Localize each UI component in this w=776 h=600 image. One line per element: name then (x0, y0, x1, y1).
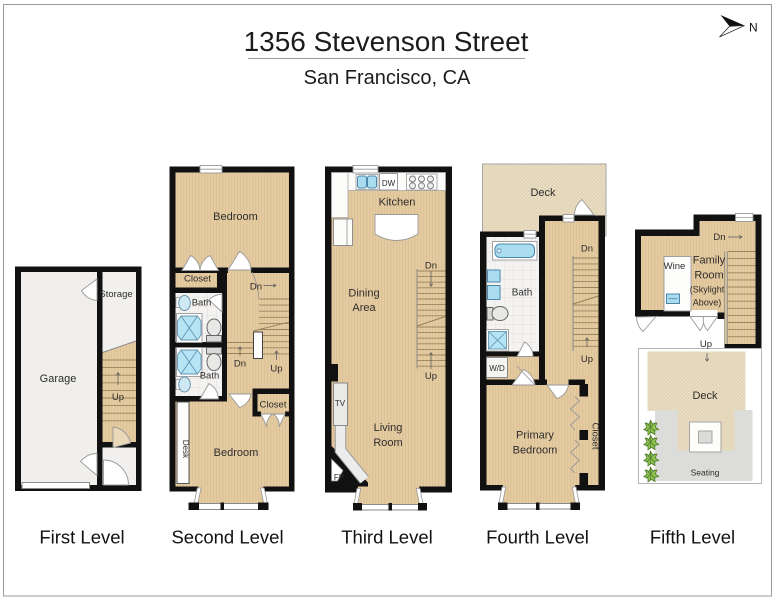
svg-text:Dn: Dn (250, 282, 262, 293)
svg-text:Bedroom: Bedroom (213, 211, 258, 223)
svg-text:Living: Living (374, 422, 403, 434)
svg-text:W/D: W/D (489, 364, 505, 373)
svg-text:Garage: Garage (40, 373, 77, 385)
svg-text:Wine: Wine (664, 261, 686, 272)
svg-text:Bedroom: Bedroom (513, 445, 558, 457)
svg-text:Desk: Desk (181, 440, 190, 459)
svg-text:Dn: Dn (425, 261, 437, 272)
svg-text:Room: Room (373, 437, 402, 449)
svg-text:Second Level: Second Level (171, 527, 283, 548)
svg-text:Storage: Storage (99, 289, 132, 300)
svg-text:Deck: Deck (692, 390, 718, 402)
svg-text:Dn: Dn (713, 232, 725, 243)
svg-text:Up: Up (425, 371, 437, 382)
svg-text:Closet: Closet (260, 400, 287, 411)
svg-text:FP: FP (334, 473, 344, 482)
svg-text:Above): Above) (693, 298, 722, 308)
svg-text:Bath: Bath (200, 371, 220, 382)
svg-text:Third Level: Third Level (341, 527, 433, 548)
svg-text:First Level: First Level (39, 527, 124, 548)
svg-text:Fifth Level: Fifth Level (650, 527, 735, 548)
svg-text:TV: TV (335, 399, 346, 408)
svg-text:Dining: Dining (348, 288, 379, 300)
svg-text:1356 Stevenson Street: 1356 Stevenson Street (244, 26, 529, 57)
svg-text:Dn: Dn (234, 359, 246, 370)
svg-text:Bath: Bath (192, 298, 212, 309)
svg-text:Up: Up (112, 392, 124, 403)
svg-text:Deck: Deck (530, 187, 556, 199)
svg-text:Kitchen: Kitchen (379, 197, 416, 209)
svg-text:Closet: Closet (184, 274, 211, 285)
svg-text:N: N (749, 21, 758, 35)
svg-text:San Francisco, CA: San Francisco, CA (304, 67, 471, 89)
svg-text:Bedroom: Bedroom (214, 447, 259, 459)
svg-text:Primary: Primary (516, 430, 554, 442)
svg-text:Bath: Bath (512, 288, 533, 299)
svg-text:DW: DW (382, 179, 396, 188)
svg-text:Up: Up (270, 364, 282, 375)
svg-text:Closet: Closet (590, 423, 601, 450)
svg-text:(Skylight: (Skylight (690, 285, 725, 295)
svg-text:Up: Up (700, 339, 712, 350)
svg-text:Fourth Level: Fourth Level (486, 527, 589, 548)
svg-text:Family: Family (693, 255, 726, 267)
svg-text:Area: Area (352, 302, 376, 314)
svg-text:Seating: Seating (691, 468, 720, 478)
svg-text:Dn: Dn (581, 244, 593, 255)
svg-text:Up: Up (581, 354, 593, 365)
svg-text:Room: Room (694, 270, 723, 282)
